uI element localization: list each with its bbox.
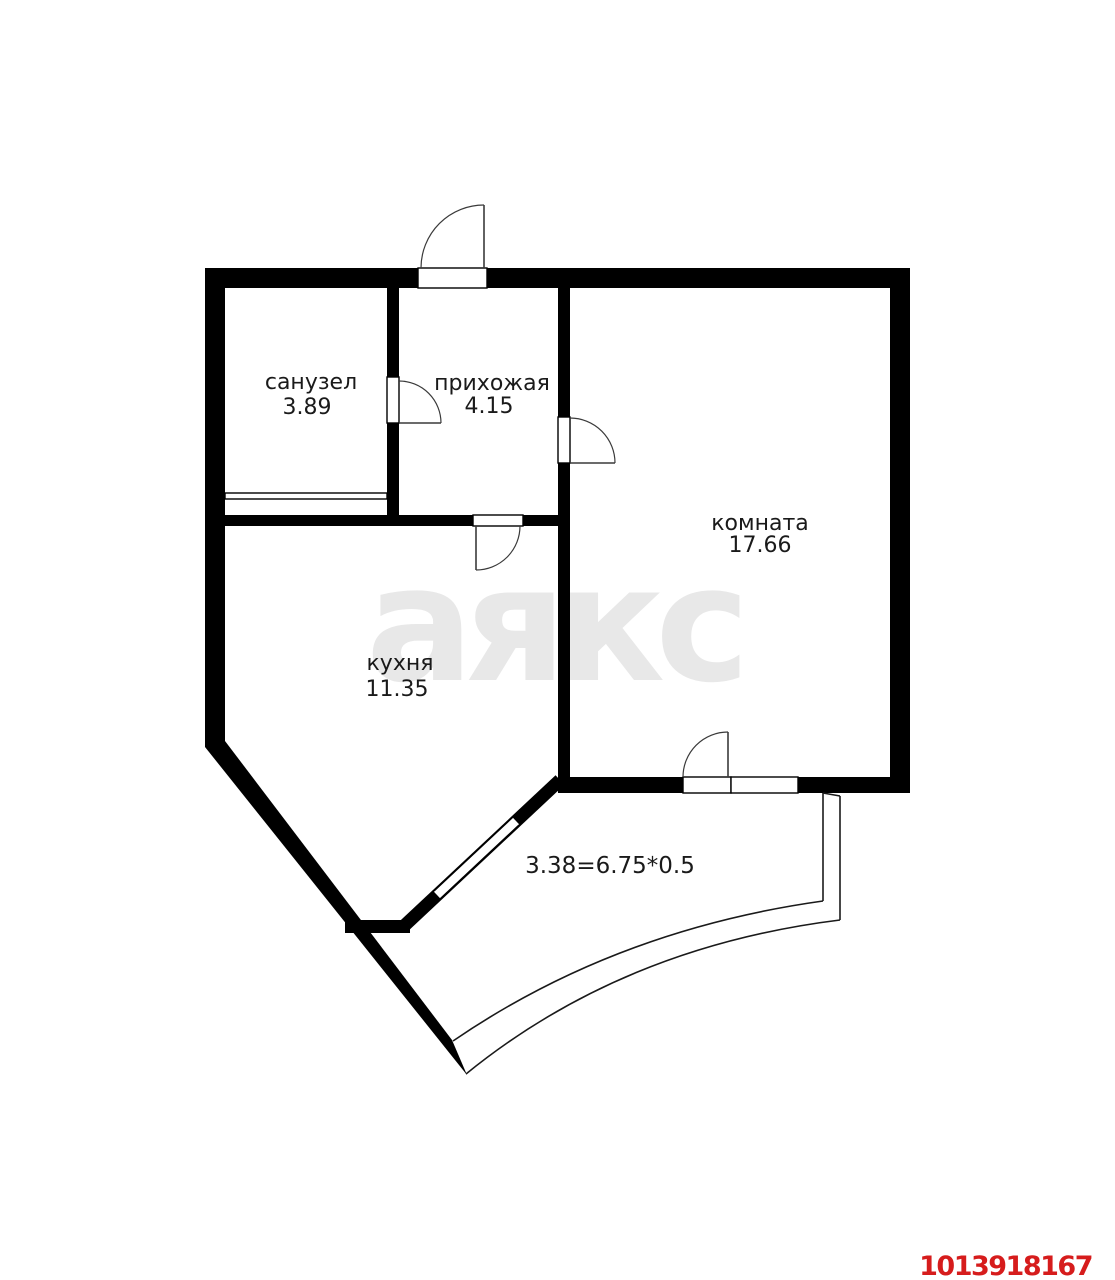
bathroom-door-sill <box>387 377 399 423</box>
floor-plan: аякс <box>0 0 1115 1280</box>
hallway-area-label: 4.15 <box>465 394 514 419</box>
room-area-label: 17.66 <box>729 533 792 558</box>
wall-top-left <box>205 268 418 288</box>
wall-left <box>205 268 225 747</box>
balcony-dimension-label: 3.38=6.75*0.5 <box>525 853 695 879</box>
kitchen-name-label: кухня <box>367 651 434 676</box>
window-wall-glass-gap <box>437 821 516 895</box>
bathroom-area-label: 3.89 <box>283 395 332 420</box>
hallway-name-label: прихожая <box>434 371 550 396</box>
entrance-door <box>418 205 487 288</box>
balcony-right-wall-bevel <box>823 793 840 796</box>
wall-kitchen-top-left <box>222 515 473 526</box>
balcony-door-sill <box>683 777 731 793</box>
balcony-door-arc <box>683 732 728 777</box>
bathroom-name-label: санузел <box>265 370 357 395</box>
entrance-door-sill <box>418 268 487 288</box>
wall-bathroom-thin-partition <box>225 493 387 499</box>
room-balcony-window <box>731 777 798 793</box>
balcony-outline <box>453 793 840 1074</box>
wall-right <box>890 268 910 793</box>
kitchen-door-sill <box>473 515 523 526</box>
bathroom-door <box>387 377 441 423</box>
room-door-arc <box>570 418 615 463</box>
window-wall-edge-inner <box>434 817 513 891</box>
room-door-sill <box>558 417 570 463</box>
room-door <box>558 417 615 463</box>
wall-kitchen-top-right <box>523 515 570 526</box>
wall-top-right <box>487 268 910 288</box>
listing-id: 1013918167 <box>919 1251 1092 1280</box>
entrance-door-arc <box>421 205 484 268</box>
wall-room-bottom-right <box>798 777 910 793</box>
balcony-curve-outer <box>466 920 840 1074</box>
window-wall-edge-outer <box>440 825 519 899</box>
wall-hallway-room-upper <box>558 288 570 417</box>
floor-plan-drawing: аякс <box>0 0 1115 1280</box>
wall-kitchen-room-lower <box>558 463 570 793</box>
wall-bathroom-hallway-lower <box>387 423 399 515</box>
wall-bathroom-hallway-upper <box>387 288 399 377</box>
balcony-door <box>683 732 731 793</box>
kitchen-area-label: 11.35 <box>366 677 429 702</box>
wall-room-bottom-left <box>558 777 683 793</box>
